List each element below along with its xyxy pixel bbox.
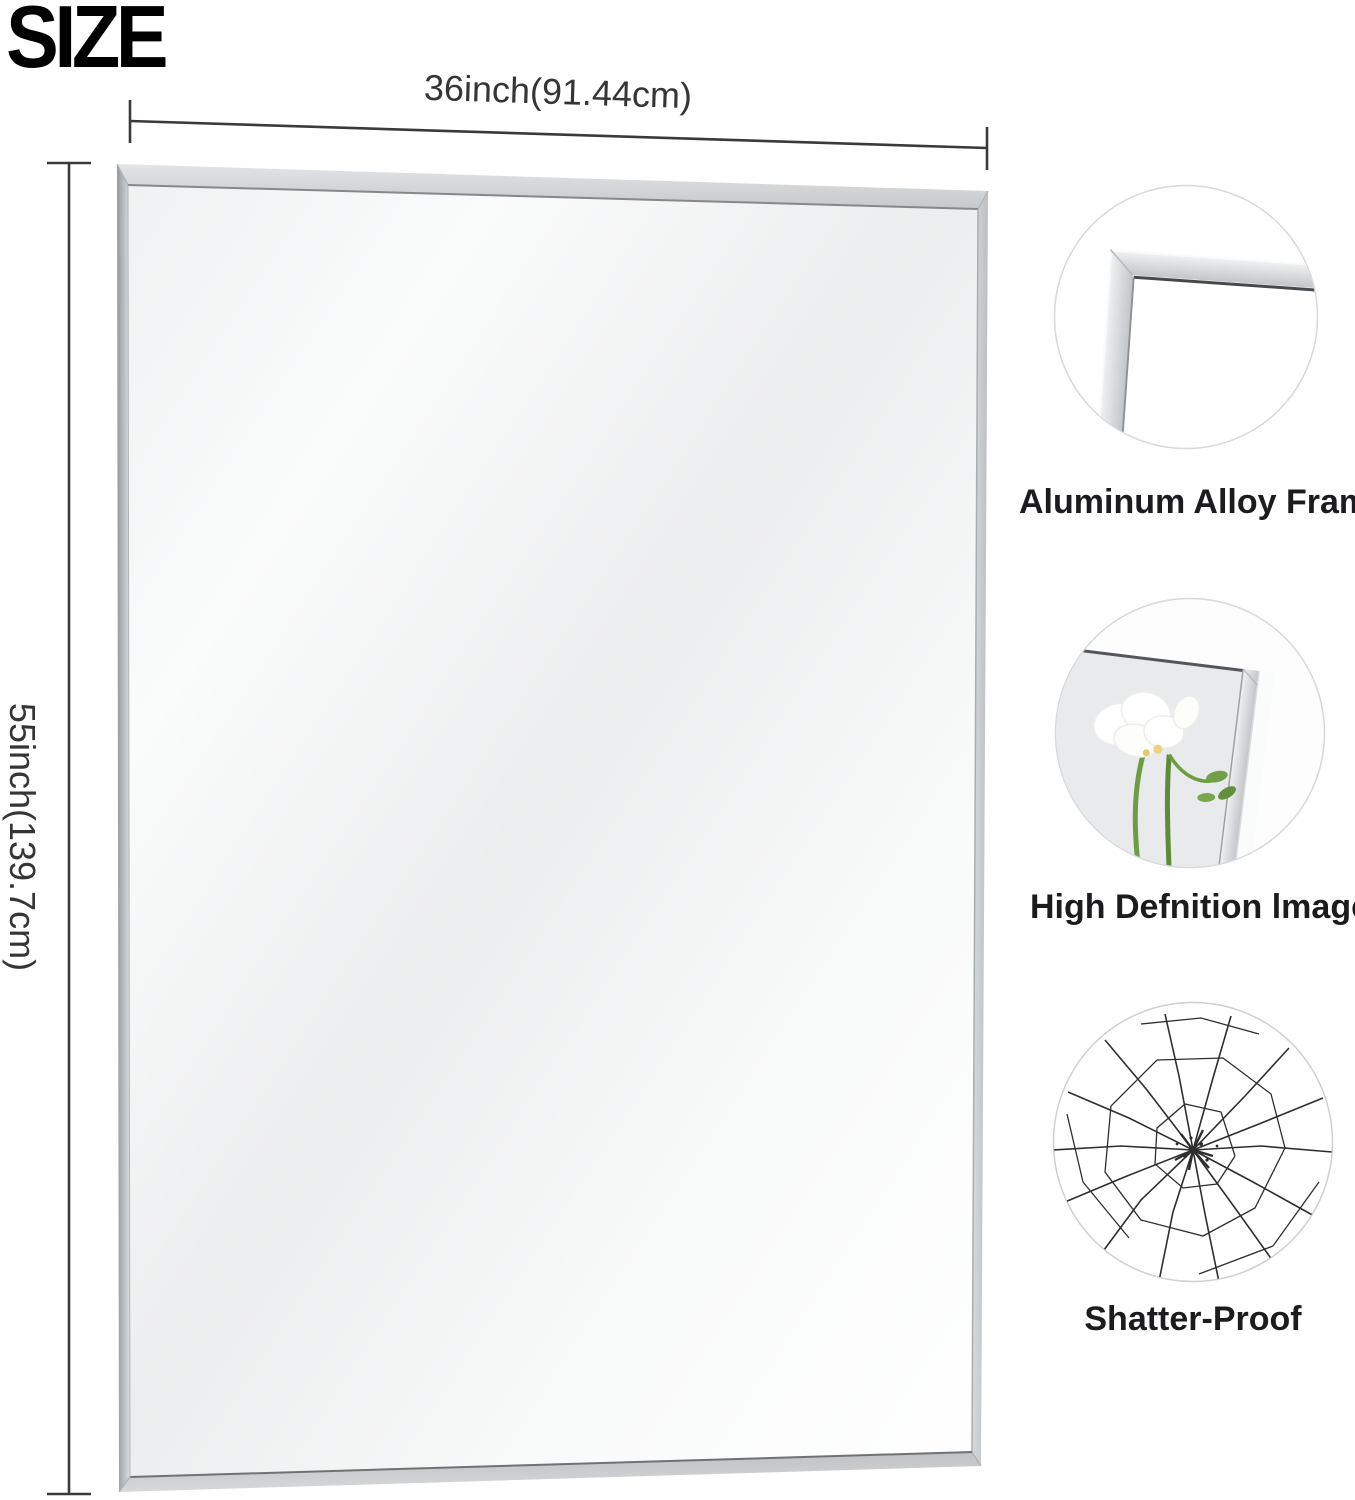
feature-caption: High Defnition lmage <box>1030 886 1355 928</box>
mirror-face <box>128 185 978 1477</box>
frame-corner-icon <box>1053 184 1319 450</box>
height-dimension-line <box>47 163 91 1494</box>
shattered-glass-icon <box>1051 1000 1335 1284</box>
flower-reflection-icon <box>1054 597 1326 869</box>
product-size-diagram: SIZE <box>0 0 1355 1500</box>
height-dimension-label: 55inch(139.7cm) <box>0 637 45 1037</box>
feature-caption: Aluminum Alloy Frame <box>1019 481 1353 523</box>
feature-caption: Shatter-Proof <box>1021 1298 1355 1340</box>
